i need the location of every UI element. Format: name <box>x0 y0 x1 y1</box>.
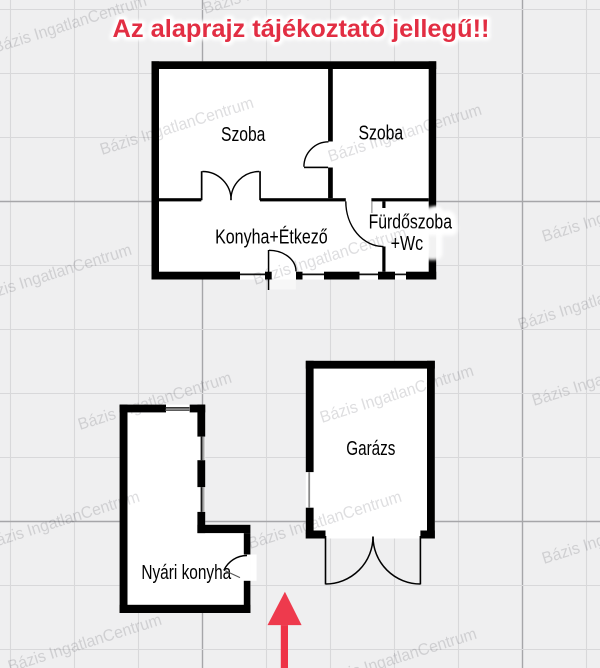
svg-text:Az alaprajz tájékoztató jelleg: Az alaprajz tájékoztató jellegű!! <box>113 15 490 43</box>
svg-text:Konyha+Étkező: Konyha+Étkező <box>215 226 328 249</box>
svg-text:Garázs: Garázs <box>346 438 395 460</box>
svg-text:Szoba: Szoba <box>221 124 266 146</box>
svg-text:Nyári konyha: Nyári konyha <box>141 562 232 584</box>
